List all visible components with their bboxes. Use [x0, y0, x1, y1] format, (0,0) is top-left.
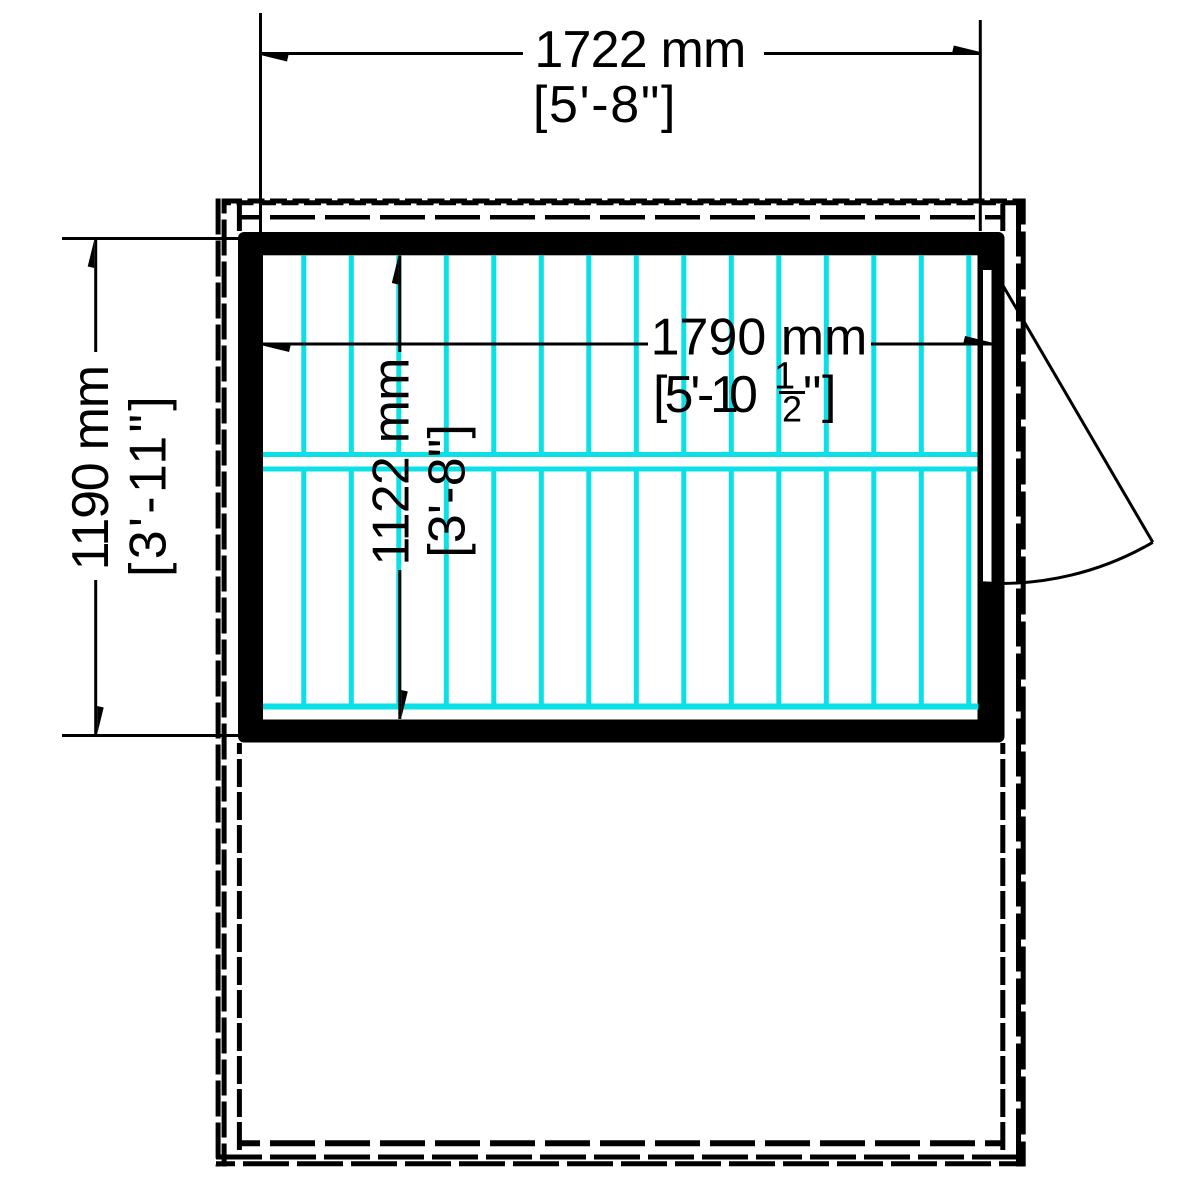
svg-text:1790 mm: 1790 mm	[651, 309, 868, 367]
svg-text:1722 mm: 1722 mm	[534, 21, 745, 79]
svg-text:1122 mm: 1122 mm	[363, 358, 421, 565]
svg-text:]: ]	[822, 366, 836, 424]
svg-text:[3'-11"]: [3'-11"]	[120, 393, 178, 577]
svg-text:0: 0	[729, 366, 758, 424]
svg-text:[5': [5'	[653, 366, 698, 424]
svg-text:1190 mm: 1190 mm	[62, 366, 120, 570]
svg-text:[5'-8"]: [5'-8"]	[533, 76, 677, 134]
svg-text:2: 2	[782, 389, 802, 430]
svg-text:": "	[803, 366, 821, 424]
svg-text:[3'-8"]: [3'-8"]	[419, 424, 477, 558]
